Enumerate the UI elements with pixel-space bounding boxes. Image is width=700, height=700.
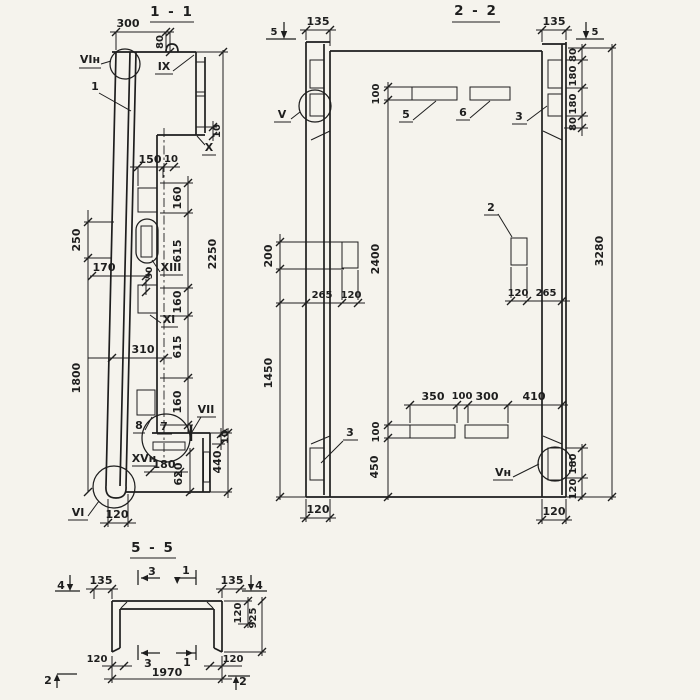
dim-135-right: 135 <box>221 574 244 587</box>
detail-circle-vn <box>538 447 572 481</box>
rib-outlet-hatch <box>310 60 324 88</box>
detail-circle-v <box>299 90 331 122</box>
dim-10-bot: 10 <box>220 430 231 444</box>
dim-160b: 160 <box>171 290 184 313</box>
drawing-canvas: 1 - 1 300 80 VIн IX 1 X 10 150 10 160 61… <box>0 0 700 700</box>
mark-4-right: 4 <box>255 579 263 592</box>
dim-620: 620 <box>172 462 185 485</box>
mark-4-arrow-left <box>67 584 73 591</box>
dimension-lines-2-2 <box>276 26 616 524</box>
embedded-plate-hatch <box>138 285 157 313</box>
mark-5-left: 5 <box>271 27 278 38</box>
weld-plate-hatch <box>153 442 185 450</box>
mark-3-bottom: 3 <box>144 657 152 670</box>
callout-ix: IX <box>158 60 171 73</box>
embedded-plate-hatch <box>511 238 527 265</box>
drawing-sheet: 1 - 1 300 80 VIн IX 1 X 10 150 10 160 61… <box>0 0 700 700</box>
dim-120-bottom-right: 120 <box>223 654 244 665</box>
dim-615b: 615 <box>171 336 184 359</box>
dim-615a: 615 <box>171 240 184 263</box>
dim-1800: 1800 <box>70 362 83 393</box>
mark-1-bottom: 1 <box>183 656 191 669</box>
detail-circle-vi <box>93 466 135 508</box>
dim-150: 150 <box>139 153 162 166</box>
dim-80-bot: 80 <box>568 117 579 131</box>
dim-10-top: 10 <box>212 124 223 138</box>
embedded-parts-2-2 <box>310 60 562 480</box>
dim-160c: 160 <box>171 390 184 413</box>
dim-100-bot: 100 <box>371 422 382 443</box>
callout-3-top: 3 <box>515 110 523 123</box>
dim-135-left: 135 <box>90 574 113 587</box>
dim-1970: 1970 <box>152 666 183 679</box>
mark-4-arrow-right <box>248 584 254 591</box>
dim-3280: 3280 <box>593 235 606 266</box>
dim-120: 120 <box>106 508 129 521</box>
section-5-5: 5 - 5 4 4 135 135 3 1 3 1 120 925 120 12… <box>44 540 267 690</box>
mark-1-top: 1 <box>182 564 190 577</box>
oval-recess-hatch <box>141 226 152 257</box>
rib-outlet-hatch <box>310 94 324 116</box>
mark-5-right: 5 <box>592 27 599 38</box>
dim-2250: 2250 <box>206 238 219 269</box>
callout-vii: VII <box>198 403 215 416</box>
dim-80: 80 <box>155 35 166 49</box>
dim-265-left: 265 <box>312 290 333 301</box>
callout-5: 5 <box>402 108 410 121</box>
section-5-arrow-left <box>281 31 287 39</box>
callout-3-bottom: 3 <box>346 426 354 439</box>
callout-vi: VI <box>72 506 85 519</box>
section-1-1: 1 - 1 300 80 VIн IX 1 X 10 150 10 160 61… <box>68 4 232 527</box>
embedded-plate-hatch <box>342 242 358 268</box>
callout-6: 6 <box>459 106 467 119</box>
rib-outlet-hatch <box>548 60 562 88</box>
dim-250: 250 <box>70 228 83 251</box>
dim-310: 310 <box>132 343 155 356</box>
mark-3-arrow-top <box>141 575 148 581</box>
callout-xi: XI <box>163 313 176 326</box>
dim-135-left: 135 <box>307 15 330 28</box>
callout-x: X <box>205 141 214 154</box>
mark-1-arrow-top <box>174 577 180 584</box>
callout-7: 7 <box>160 420 168 433</box>
dim-925: 925 <box>248 608 259 629</box>
dim-170: 170 <box>93 261 116 274</box>
rebar-outlet-hatch <box>204 452 210 482</box>
rib-outlet-hatch <box>548 94 562 116</box>
dim-2400: 2400 <box>369 243 382 274</box>
dim-300: 300 <box>476 390 499 403</box>
section-5-arrow-right <box>583 31 589 39</box>
dim-120-rib-right: 120 <box>543 505 566 518</box>
dim-135-right: 135 <box>543 15 566 28</box>
section-1-1-title: 1 - 1 <box>150 4 194 20</box>
embedded-bar-hatch <box>465 425 508 438</box>
embedded-bar-hatch <box>470 87 510 100</box>
dim-10-step: 10 <box>164 154 178 165</box>
section-2-2-title: 2 - 2 <box>454 3 498 19</box>
section-2-2: 2 - 2 5 5 135 135 80 180 180 <box>262 3 616 524</box>
dim-180-bottom-right: 180 <box>568 454 579 475</box>
embedded-plate-hatch <box>138 188 157 212</box>
mark-4-left: 4 <box>57 579 65 592</box>
dim-180-top1: 180 <box>568 66 579 87</box>
panel-outline-1-1 <box>106 44 210 498</box>
dim-100-top: 100 <box>371 84 382 105</box>
callout-8: 8 <box>135 419 143 432</box>
mark-2-left: 2 <box>44 674 52 687</box>
callout-1: 1 <box>91 80 99 93</box>
section-5-5-title: 5 - 5 <box>131 540 175 556</box>
callout-v: V <box>278 108 287 121</box>
callout-vn: Vн <box>495 466 511 479</box>
dim-120-left-patch: 120 <box>341 290 362 301</box>
rib-outlet-hatch <box>310 448 324 480</box>
dim-200: 200 <box>262 244 275 267</box>
rebar-outlet-hatch <box>196 96 205 127</box>
dim-1450: 1450 <box>262 357 275 388</box>
dim-80-top: 80 <box>568 48 579 62</box>
dim-100-mid: 100 <box>452 391 473 402</box>
dim-410: 410 <box>523 390 546 403</box>
callout-vin: VIн <box>80 53 100 66</box>
mark-3-arrow-bottom <box>141 650 148 656</box>
leader-lines-1-1 <box>68 55 216 520</box>
dim-120-right: 120 <box>233 603 244 624</box>
mark-3-top: 3 <box>148 565 156 578</box>
callout-xvn: XVн <box>132 452 157 465</box>
dim-120-right-patch: 120 <box>508 288 529 299</box>
dim-265-right: 265 <box>536 288 557 299</box>
dim-300: 300 <box>117 17 140 30</box>
dim-350: 350 <box>422 390 445 403</box>
embedded-bar-hatch <box>410 425 455 438</box>
dim-50: 50 <box>145 267 155 280</box>
embedded-plate-hatch <box>137 390 155 415</box>
dim-120-rib-left: 120 <box>307 503 330 516</box>
callout-2: 2 <box>487 201 495 214</box>
dim-180-top2: 180 <box>568 94 579 115</box>
dim-120-bottom-right: 120 <box>568 479 579 500</box>
dim-440: 440 <box>211 450 224 473</box>
dim-450: 450 <box>368 455 381 478</box>
dim-120-bottom-left: 120 <box>87 654 108 665</box>
rebar-outlet-hatch <box>196 62 205 92</box>
rib-outlet-hatch <box>548 448 562 480</box>
embedded-bar-hatch <box>412 87 457 100</box>
callout-xiii: XIII <box>161 261 182 274</box>
channel-outline-5-5 <box>112 601 222 652</box>
dim-160a: 160 <box>171 186 184 209</box>
mark-2-right: 2 <box>239 675 247 688</box>
detail-callout-circles-2-2 <box>299 90 572 481</box>
mark-2-arrow-left <box>54 674 60 681</box>
